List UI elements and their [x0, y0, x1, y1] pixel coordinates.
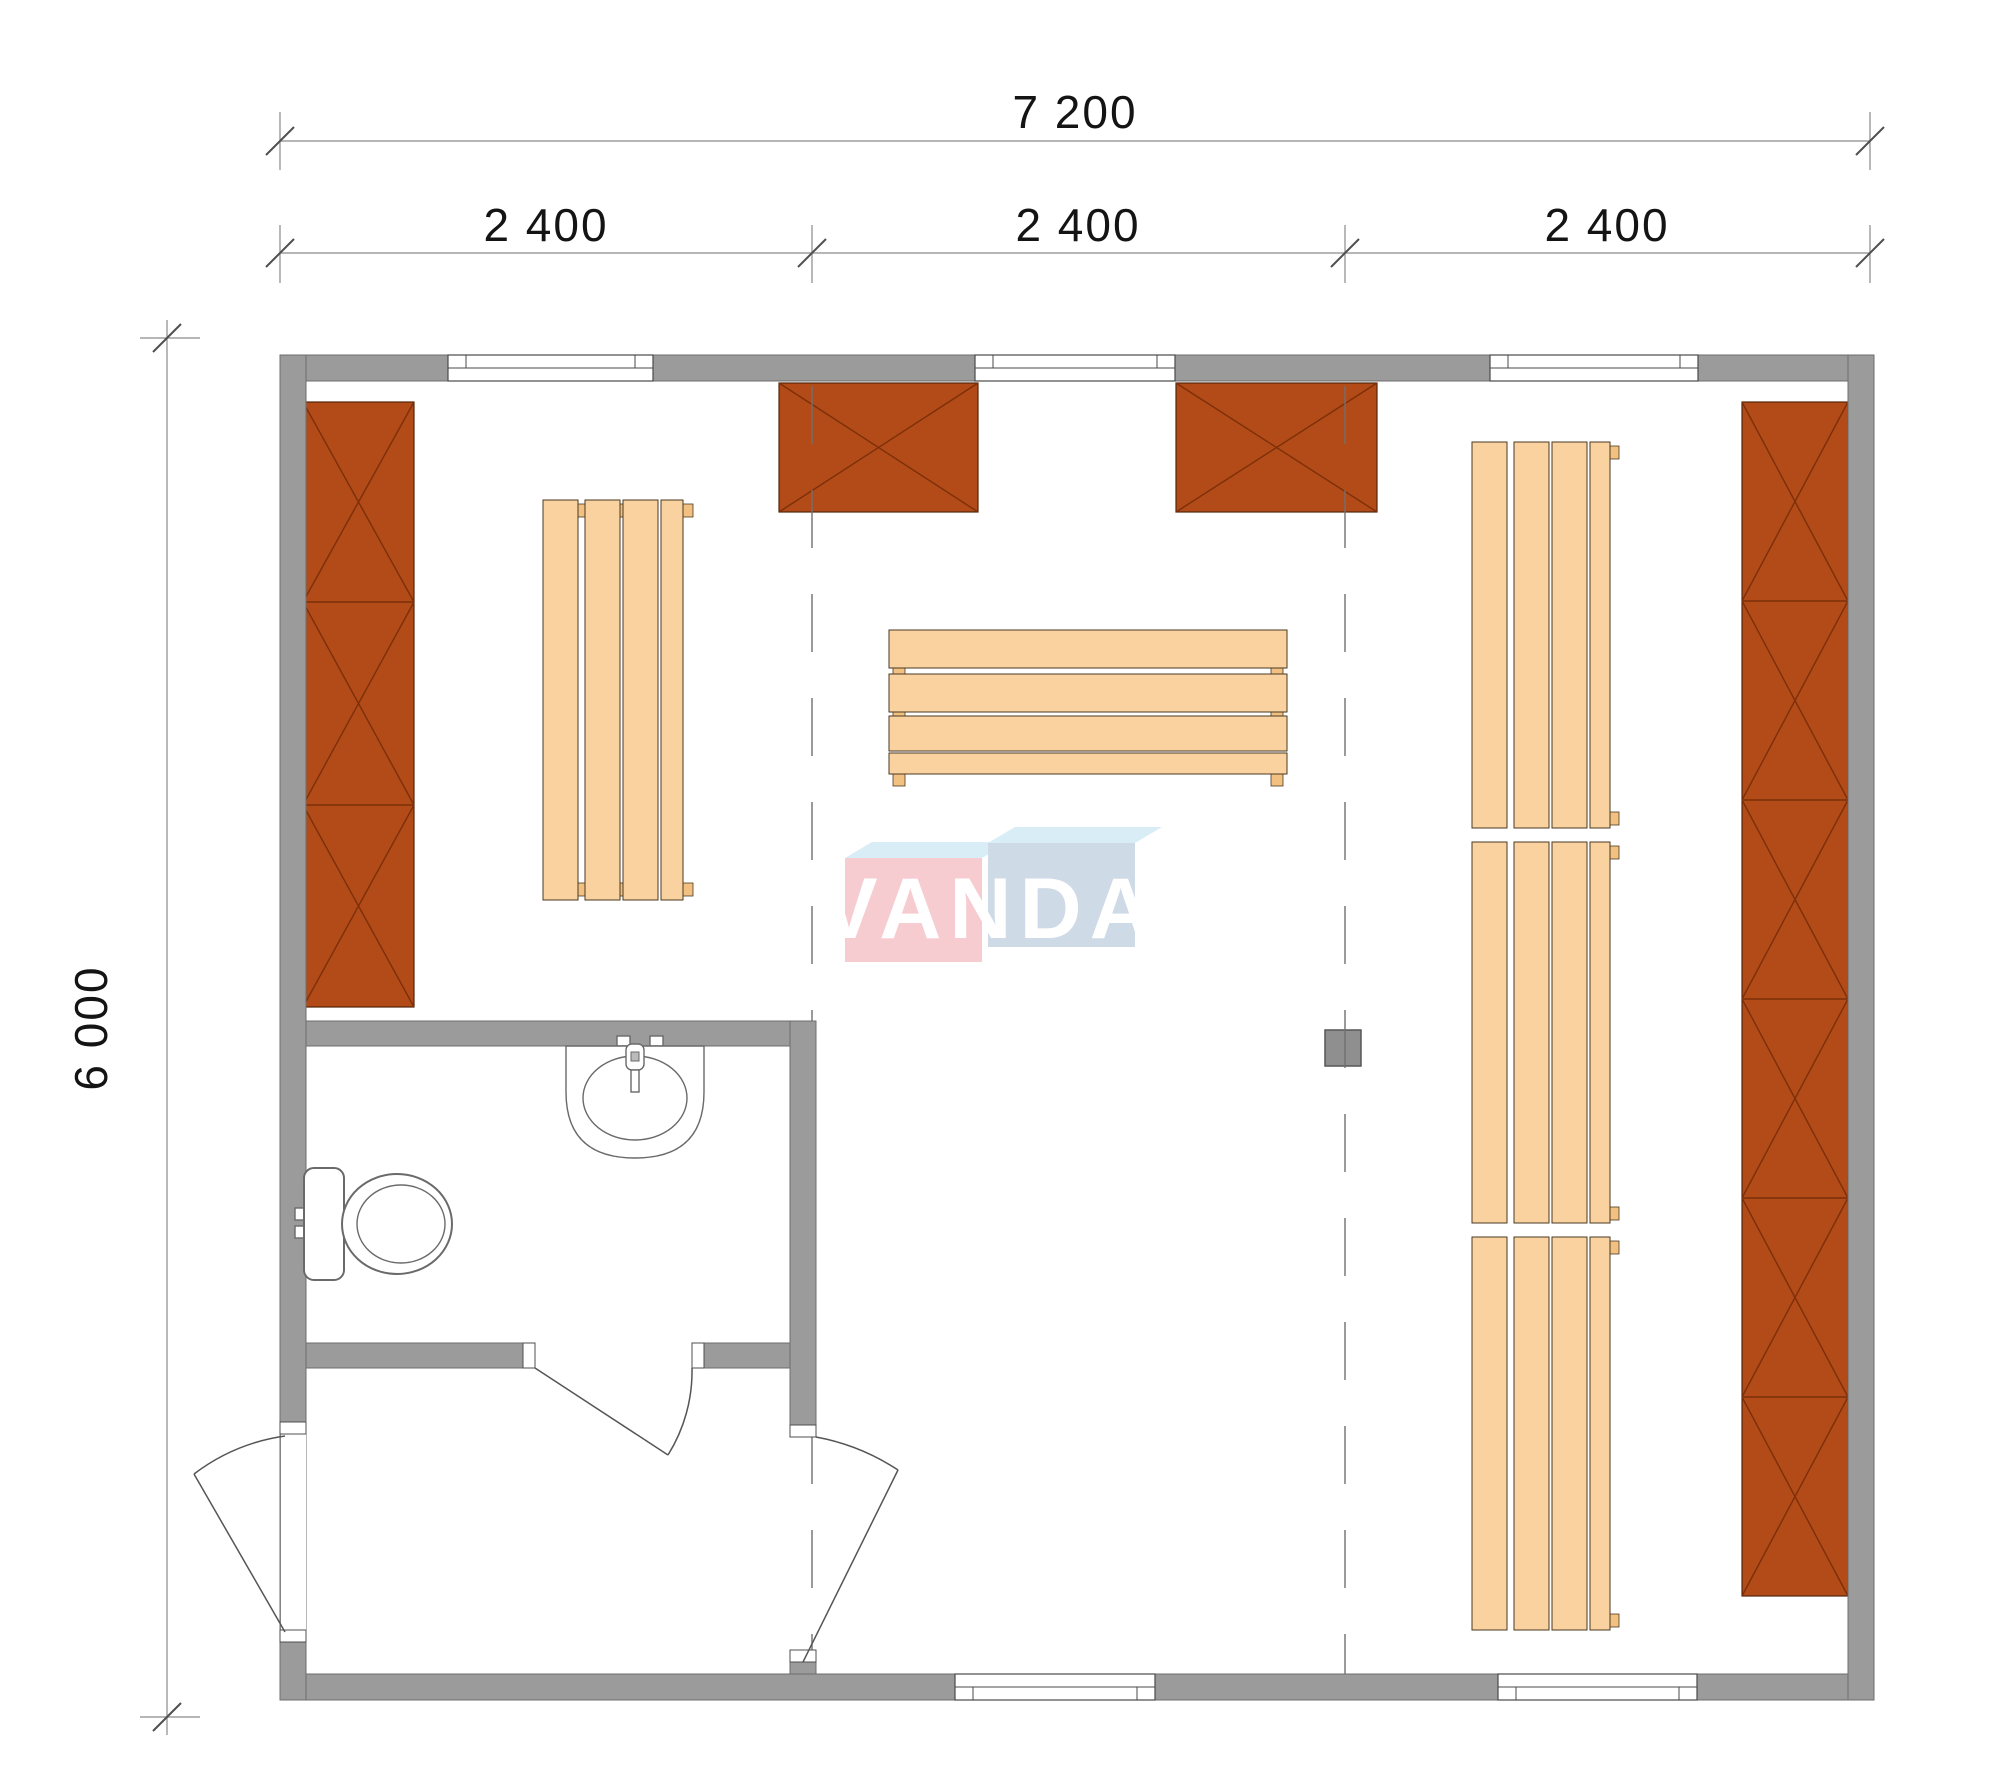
bench-right — [1472, 442, 1619, 1630]
dimension-label-total-width: 7 200 — [1012, 86, 1137, 138]
sink-faucet-spout — [631, 1070, 639, 1092]
window-top-2 — [975, 355, 1175, 381]
toilet — [295, 1168, 452, 1280]
door-jamb — [692, 1343, 704, 1368]
wall-bathroom-right-stub — [790, 1662, 816, 1674]
dimension-label-module-3: 2 400 — [1544, 199, 1669, 251]
wall-entry-left-segment — [306, 1343, 523, 1368]
bench-left — [543, 500, 693, 900]
door-bathroom — [535, 1368, 692, 1455]
door-jamb — [280, 1422, 306, 1434]
bench-centre-slat — [889, 674, 1287, 712]
bench-right-slat — [1514, 442, 1549, 828]
dimension-label-module-1: 2 400 — [483, 199, 608, 251]
dimension-line-total-depth — [140, 320, 200, 1735]
logo-box-left-top-face — [845, 842, 1009, 858]
door-opening-exterior — [281, 1434, 306, 1630]
bathroom-fixtures — [295, 1036, 704, 1280]
sink — [566, 1036, 704, 1158]
dimension-label-total-depth: 6 000 — [65, 965, 117, 1090]
bench-left-slat — [623, 500, 658, 900]
sink-mount — [617, 1036, 630, 1046]
bench-centre-slat — [889, 716, 1287, 751]
bench-right-slat — [1590, 442, 1610, 828]
floor-plan-drawing: 7 200 2 400 2 400 2 400 6 000 — [0, 0, 2000, 1786]
bench-left-slat — [661, 500, 683, 900]
door-jamb — [790, 1425, 816, 1437]
walls — [280, 355, 1874, 1700]
door-sauna-room — [803, 1437, 898, 1662]
door-jamb — [790, 1650, 816, 1662]
window-bottom-2 — [1498, 1674, 1697, 1700]
floor-plan-sheet: 7 200 2 400 2 400 2 400 6 000 — [0, 0, 2000, 1786]
door-jamb — [280, 1630, 306, 1642]
sink-faucet-handle — [631, 1052, 639, 1061]
bench-left-tab — [682, 504, 693, 517]
cabinet-left-wall — [303, 402, 414, 1007]
wall-entry-right-segment — [704, 1343, 790, 1368]
sauna-stove — [1325, 1030, 1361, 1066]
dimension-label-module-2: 2 400 — [1015, 199, 1140, 251]
cabinet-top-left — [779, 383, 978, 512]
bench-centre — [889, 630, 1287, 786]
vanda-watermark: VANDA — [820, 827, 1162, 962]
bench-right-slat — [1552, 842, 1587, 1223]
bench-centre-slat — [889, 753, 1287, 774]
toilet-tank — [304, 1168, 344, 1280]
bench-right-slat — [1590, 1237, 1610, 1630]
bench-right-slat — [1552, 1237, 1587, 1630]
logo-box-right-top-face — [988, 827, 1162, 843]
bench-left-slat — [585, 500, 620, 900]
bench-left-tab — [682, 883, 693, 896]
bench-right-slat — [1514, 1237, 1549, 1630]
cabinet-right-wall — [1742, 402, 1848, 1596]
bench-centre-slat — [889, 630, 1287, 668]
bench-right-slat — [1552, 442, 1587, 828]
bench-right-slat — [1472, 1237, 1507, 1630]
bench-right-slat — [1472, 842, 1507, 1223]
bench-right-slat — [1472, 442, 1507, 828]
furniture — [303, 383, 1848, 1630]
bench-right-slat — [1590, 842, 1610, 1223]
door-exterior-left — [194, 1436, 285, 1632]
wall-bathroom-top — [306, 1021, 816, 1046]
wall-bathroom-right — [790, 1021, 816, 1425]
bench-left-slat — [543, 500, 578, 900]
window-top-1 — [448, 355, 653, 381]
wall-exterior-right — [1848, 355, 1874, 1700]
sink-mount — [650, 1036, 663, 1046]
cabinet-top-right — [1176, 383, 1377, 512]
window-bottom-1 — [955, 1674, 1155, 1700]
window-top-3 — [1490, 355, 1698, 381]
door-jamb — [523, 1343, 535, 1368]
toilet-seat — [357, 1185, 445, 1263]
logo-brand-text: VANDA — [820, 861, 1159, 957]
bench-right-slat — [1514, 842, 1549, 1223]
